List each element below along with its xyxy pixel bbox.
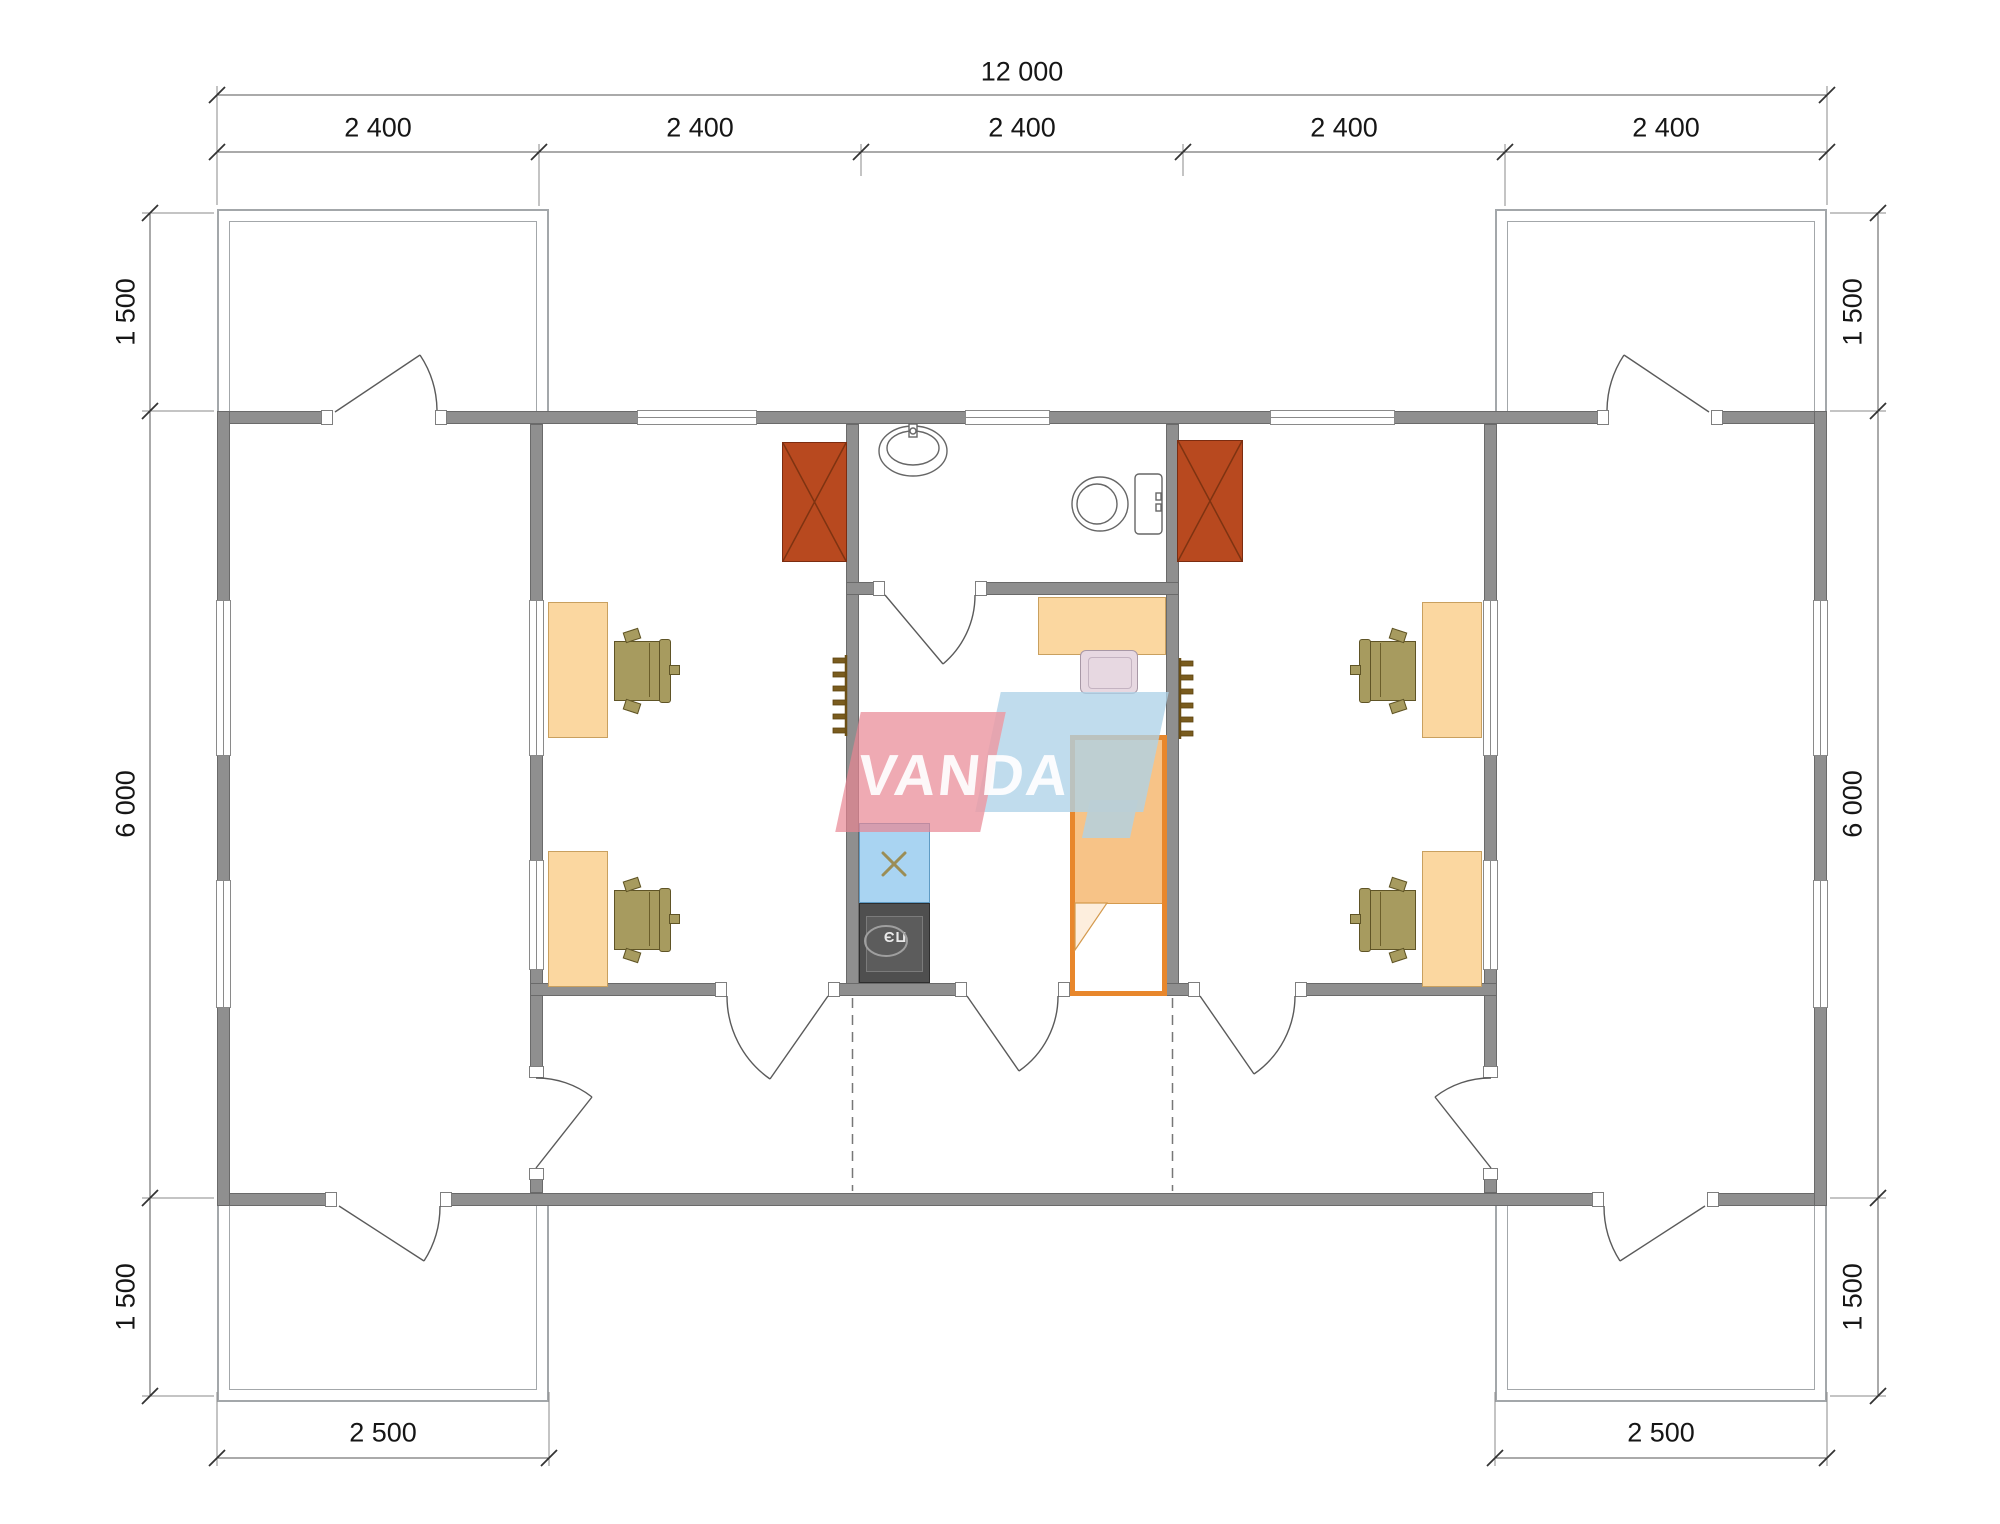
- dim-left-top: 1 500: [111, 278, 142, 346]
- terrace-bottom-left: [217, 1206, 549, 1402]
- wall-left: [217, 411, 230, 1206]
- door-jamb: [321, 410, 333, 425]
- door-arc: [1019, 996, 1058, 1071]
- window-right-wall-1: [1813, 600, 1828, 756]
- door-arc: [536, 1078, 592, 1097]
- chair-armrest: [669, 914, 680, 924]
- desk-right-2: [1422, 851, 1482, 987]
- window-left-wall-1: [216, 600, 231, 756]
- chair-seam: [649, 892, 650, 946]
- door-gap-terrace-bottom-right: [1604, 1192, 1707, 1207]
- door-gap-veranda-right: [1483, 1078, 1498, 1168]
- electric-stove: ПЭ: [859, 903, 930, 983]
- chair-seam: [649, 643, 650, 697]
- desk-left-1: [548, 602, 608, 738]
- dim-right-top: 1 500: [1838, 278, 1869, 346]
- door-leaf: [967, 996, 1019, 1071]
- window-bathroom: [965, 410, 1050, 425]
- desk-bedroom: [1038, 597, 1166, 655]
- office-chair: [1354, 877, 1418, 961]
- door-leaf: [1200, 996, 1254, 1074]
- door-gap-terrace-bottom-left: [337, 1192, 440, 1207]
- chair-armrest: [669, 665, 680, 675]
- door-jamb: [529, 1168, 544, 1180]
- window-right-wall-2: [1813, 880, 1828, 1008]
- dim-segment-1: 2 400: [344, 113, 412, 144]
- office-chair: [1354, 628, 1418, 712]
- desk-right-1: [1422, 602, 1482, 738]
- chair-armrest: [623, 699, 642, 714]
- door-jamb: [1188, 982, 1200, 997]
- door-gap-left-room: [727, 982, 828, 997]
- dim-segment-4: 2 400: [1310, 113, 1378, 144]
- door-arc: [943, 595, 975, 664]
- radiator-right: [1180, 658, 1193, 739]
- door-jamb: [1295, 982, 1307, 997]
- door-gap-veranda-left: [529, 1078, 544, 1168]
- dim-segment-5: 2 400: [1632, 113, 1700, 144]
- door-gap-terrace-top-left: [333, 410, 435, 425]
- watermark-text: VANDA: [854, 742, 1073, 809]
- window-glazing: [966, 417, 1049, 418]
- door-jamb: [1711, 410, 1723, 425]
- window-veranda-right-1: [1483, 600, 1498, 756]
- chair-seam: [1380, 892, 1381, 946]
- zone-boundary-dashed: [853, 998, 1173, 1191]
- dim-segment-2: 2 400: [666, 113, 734, 144]
- chair-armrest: [1350, 914, 1361, 924]
- door-jamb: [1483, 1066, 1498, 1078]
- terrace-railing-inner: [229, 1206, 537, 1390]
- door-leaf: [885, 595, 943, 664]
- chair-seat: [1369, 641, 1416, 701]
- terrace-railing-inner: [229, 221, 537, 411]
- door-jamb: [955, 982, 967, 997]
- wardrobe-right: [1177, 440, 1243, 562]
- chair-seam: [1380, 643, 1381, 697]
- window-glazing: [536, 601, 537, 755]
- dim-total-width: 12 000: [981, 57, 1064, 88]
- door-leaf: [770, 996, 828, 1079]
- window-veranda-left-2: [529, 860, 544, 970]
- dim-left-middle: 6 000: [111, 770, 142, 838]
- floor-plan: ПЭ: [0, 0, 2000, 1524]
- door-jamb: [1483, 1168, 1498, 1180]
- watermark-block-blue-small: [1082, 800, 1138, 838]
- toilet-icon: [1072, 474, 1162, 534]
- dim-bottom-right: 2 500: [1627, 1418, 1695, 1449]
- window-left-wall-2: [216, 880, 231, 1008]
- dim-bottom-left: 2 500: [349, 1418, 417, 1449]
- desk-left-2: [548, 851, 608, 987]
- door-arc: [727, 996, 770, 1079]
- chair-armrest: [1389, 699, 1408, 714]
- door-jamb: [435, 410, 447, 425]
- door-jamb: [325, 1192, 337, 1207]
- window-glazing: [1271, 417, 1394, 418]
- window-glazing: [1490, 861, 1491, 969]
- door-jamb: [529, 1066, 544, 1078]
- window-glazing: [1490, 601, 1491, 755]
- terrace-railing-inner: [1507, 221, 1815, 411]
- terrace-bottom-right: [1495, 1206, 1827, 1402]
- window-glazing: [638, 417, 756, 418]
- chair-cushion: [1088, 657, 1132, 689]
- door-gap-right-room: [1200, 982, 1295, 997]
- window-left-room-top: [637, 410, 757, 425]
- chair-armrest: [623, 948, 642, 963]
- chair-armrest: [1389, 948, 1408, 963]
- door-gap-bathroom: [885, 581, 975, 596]
- chair-seat: [614, 890, 661, 950]
- dim-segment-3: 2 400: [988, 113, 1056, 144]
- window-glazing: [536, 861, 537, 969]
- terrace-top-left: [217, 209, 549, 411]
- window-glazing: [1820, 881, 1821, 1007]
- wall-right: [1814, 411, 1827, 1206]
- door-gap-center-room: [967, 982, 1058, 997]
- window-veranda-left-1: [529, 600, 544, 756]
- terrace-railing-inner: [1507, 1206, 1815, 1390]
- door-leaf: [536, 1097, 592, 1168]
- window-veranda-right-2: [1483, 860, 1498, 970]
- stove-label: ПЭ: [860, 928, 929, 945]
- door-gap-terrace-top-right: [1609, 410, 1711, 425]
- door-jamb: [1592, 1192, 1604, 1207]
- chair-armrest: [1350, 665, 1361, 675]
- window-right-room-top: [1270, 410, 1395, 425]
- radiator-left: [833, 655, 846, 736]
- door-jamb: [1058, 982, 1070, 997]
- office-chair: [612, 877, 676, 961]
- window-glazing: [223, 601, 224, 755]
- wardrobe-left: [782, 442, 847, 562]
- chair-seat: [1369, 890, 1416, 950]
- door-jamb: [1597, 410, 1609, 425]
- window-glazing: [1820, 601, 1821, 755]
- door-arc: [1254, 996, 1295, 1074]
- dim-left-bottom: 1 500: [111, 1263, 142, 1331]
- door-jamb: [715, 982, 727, 997]
- door-jamb: [828, 982, 840, 997]
- door-jamb: [1707, 1192, 1719, 1207]
- terrace-top-right: [1495, 209, 1827, 411]
- sink-icon: [879, 424, 947, 476]
- bedroom-chair: [1080, 650, 1138, 694]
- kitchen-counter: [859, 823, 930, 903]
- dim-right-middle: 6 000: [1838, 770, 1869, 838]
- dim-right-bottom: 1 500: [1838, 1263, 1869, 1331]
- window-glazing: [223, 881, 224, 1007]
- chair-seat: [614, 641, 661, 701]
- door-jamb: [975, 581, 987, 596]
- wall-bottom: [217, 1193, 1827, 1206]
- door-jamb: [873, 581, 885, 596]
- wall-partition-a: [846, 424, 859, 996]
- office-chair: [612, 628, 676, 712]
- door-jamb: [440, 1192, 452, 1207]
